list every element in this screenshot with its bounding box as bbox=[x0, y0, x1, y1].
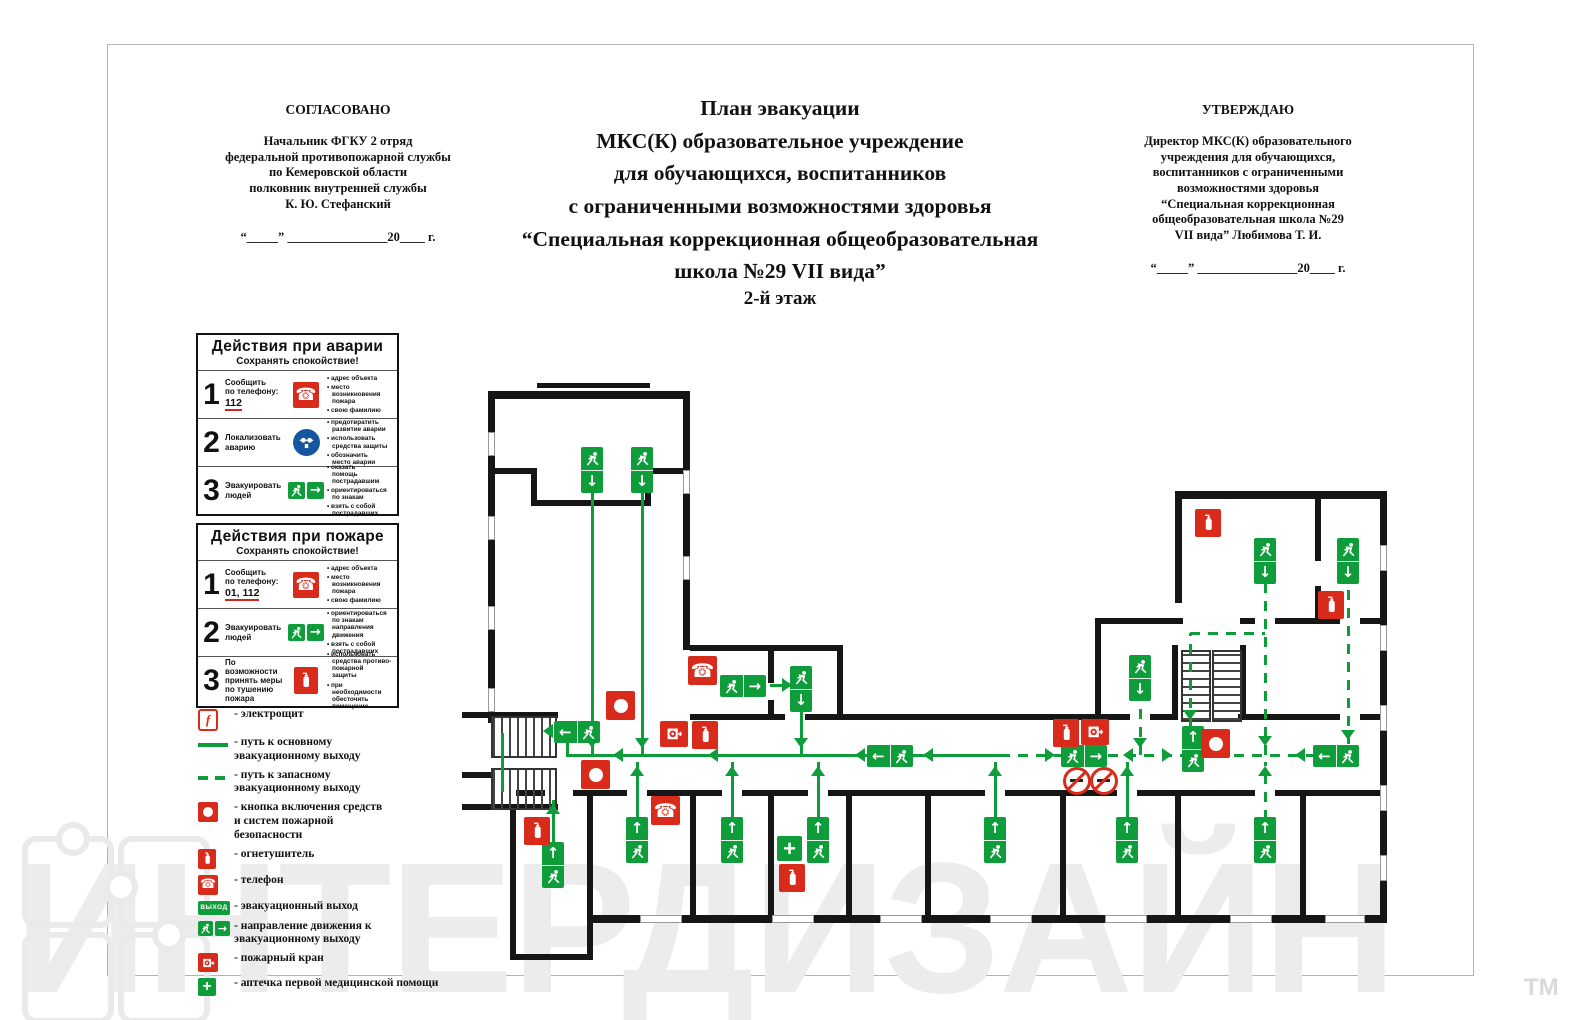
legend-item: ВЫХОД- эвакуационный выход bbox=[198, 900, 478, 915]
evacuation-route-solid bbox=[501, 733, 504, 792]
exit-sign-right-icon: → bbox=[720, 675, 766, 697]
wall bbox=[1240, 618, 1255, 624]
legend-item: +- аптечка первой медицинской помощи bbox=[198, 977, 478, 996]
step-number: 2 bbox=[198, 616, 225, 650]
window-opening bbox=[1380, 705, 1387, 731]
legend-label: - электрощит bbox=[234, 708, 304, 722]
bullet-item: • использовать средства противо- пожарно… bbox=[327, 651, 396, 679]
wall bbox=[690, 796, 696, 915]
extinguisher-icon bbox=[692, 721, 718, 749]
bullet-item: • свою фамилию bbox=[327, 407, 396, 414]
sign-cell: ↓ bbox=[1254, 562, 1276, 585]
first-aid-icon: + bbox=[777, 836, 802, 861]
route-arrow bbox=[1045, 748, 1055, 762]
sign-cell: ↑ bbox=[807, 817, 829, 841]
step-bullets: • использовать средства противо- пожарно… bbox=[325, 647, 397, 713]
wall bbox=[488, 391, 690, 399]
wall bbox=[1095, 618, 1183, 624]
evacuation-route-solid bbox=[567, 754, 1000, 757]
step-label: Эвакуировать людей bbox=[225, 481, 287, 499]
wall bbox=[1137, 790, 1255, 796]
step-bullets: • адрес объекта• место возникновения пож… bbox=[325, 371, 397, 418]
wall bbox=[462, 772, 492, 778]
instruction-row: 2Локализовать аварию• предотвратить разв… bbox=[198, 418, 397, 466]
main-route-line-icon bbox=[198, 743, 228, 747]
wall bbox=[690, 714, 785, 720]
exit-sign-down-icon: ↓ bbox=[1337, 538, 1359, 584]
no-smoking-icon bbox=[1063, 767, 1091, 795]
exit-sign-left-icon: ← bbox=[554, 721, 600, 743]
extinguisher-icon bbox=[524, 817, 550, 845]
instruction-row: 1Сообщить по телефону:01, 112☎• адрес об… bbox=[198, 560, 397, 608]
sign-cell bbox=[807, 841, 829, 864]
route-arrow bbox=[855, 748, 865, 762]
exit-sign-down-icon: ↓ bbox=[631, 447, 653, 493]
box-title: Действия при пожаре bbox=[198, 525, 397, 546]
extinguisher-icon bbox=[1318, 591, 1344, 619]
legend-icon-cell: + bbox=[198, 977, 234, 996]
legend-item: →- направление движения к эвакуационному… bbox=[198, 920, 478, 948]
wall bbox=[1300, 714, 1340, 720]
accident-actions-box: Действия при аварииСохранять спокойствие… bbox=[196, 333, 399, 516]
protective-mask-icon bbox=[293, 429, 320, 456]
box-title: Действия при аварии bbox=[198, 335, 397, 356]
legend-label: - эвакуационный выход bbox=[234, 900, 358, 914]
legend-label: - кнопка включения средств и систем пожа… bbox=[234, 801, 382, 842]
wall bbox=[768, 796, 774, 915]
box-subtitle: Сохранять спокойствие! bbox=[198, 356, 397, 370]
sign-cell bbox=[1254, 538, 1276, 562]
step-icon-cell bbox=[287, 667, 325, 694]
sign-cell bbox=[542, 866, 564, 889]
wall bbox=[1175, 491, 1387, 499]
plan-title: План эвакуации МКС(К) образовательное уч… bbox=[455, 92, 1105, 288]
phone-icon: ☎ bbox=[688, 656, 717, 685]
window-opening bbox=[772, 915, 814, 923]
route-arrow bbox=[543, 724, 553, 738]
sign-cell: ↓ bbox=[631, 471, 653, 494]
bullet-item: • место возникновения пожара bbox=[327, 384, 396, 405]
step-icon-cell: ☎ bbox=[287, 572, 325, 598]
bullet-item: • ориентироваться по знакам bbox=[327, 487, 396, 501]
evacuation-route-solid bbox=[641, 492, 644, 755]
window-opening bbox=[488, 516, 495, 540]
exit-sign-up-icon: ↑ bbox=[721, 817, 743, 863]
box-subtitle: Сохранять спокойствие! bbox=[198, 546, 397, 560]
evacuation-route-dashed bbox=[1190, 632, 1265, 635]
sign-cell: ← bbox=[1313, 745, 1337, 767]
agree-block: СОГЛАСОВАНО Начальник ФГКУ 2 отряд федер… bbox=[196, 86, 480, 261]
sign-cell: ↑ bbox=[721, 817, 743, 841]
step-number: 2 bbox=[198, 426, 225, 460]
sign-cell bbox=[720, 675, 744, 697]
bullet-item: • использовать средства защиты bbox=[327, 435, 396, 449]
exit-sign-down-icon: ↓ bbox=[581, 447, 603, 493]
phone-icon: ☎ bbox=[198, 875, 218, 895]
wall bbox=[1060, 796, 1066, 915]
reserve-route-line-icon bbox=[198, 776, 228, 780]
agree-dateline: “_____” ________________20____ г. bbox=[196, 230, 480, 246]
legend-icon-cell bbox=[198, 952, 234, 972]
step-label: Локализовать аварию bbox=[225, 433, 287, 451]
sign-cell bbox=[891, 745, 914, 767]
stairs bbox=[1212, 650, 1242, 722]
exit-man-icon bbox=[288, 482, 305, 499]
window-opening bbox=[880, 915, 922, 923]
phone-number: 01, 112 bbox=[225, 587, 259, 601]
alarm-button-icon bbox=[1201, 729, 1230, 758]
wall bbox=[1175, 491, 1182, 603]
wall bbox=[690, 645, 843, 651]
exit-sign-up-icon: ↑ bbox=[542, 842, 564, 888]
step-icon-cell: ☎ bbox=[287, 382, 325, 408]
bullet-item: • при необходимости обесточить помещение bbox=[327, 682, 396, 710]
sign-cell: ↑ bbox=[1254, 817, 1276, 841]
phone-icon: ☎ bbox=[293, 382, 319, 408]
wall bbox=[683, 391, 690, 650]
route-arrow bbox=[1120, 766, 1134, 776]
step-number: 1 bbox=[198, 378, 225, 412]
legend-label: - направление движения к эвакуационному … bbox=[234, 920, 371, 948]
wall bbox=[846, 796, 852, 915]
route-arrow bbox=[811, 766, 825, 776]
exit-man-icon bbox=[288, 624, 305, 641]
legend-label: - пожарный кран bbox=[234, 952, 324, 966]
window-opening bbox=[1380, 785, 1387, 811]
route-arrow bbox=[708, 748, 718, 762]
sign-cell: ↑ bbox=[984, 817, 1006, 841]
window-opening bbox=[640, 915, 682, 923]
instruction-row: 1Сообщить по телефону:112☎• адрес объект… bbox=[198, 370, 397, 418]
legend-label: - телефон bbox=[234, 874, 284, 888]
window-opening bbox=[990, 915, 1032, 923]
sign-cell bbox=[1337, 538, 1359, 562]
alarm-button-icon bbox=[581, 760, 610, 789]
evacuation-route-solid bbox=[800, 710, 803, 755]
sign-cell bbox=[1061, 745, 1085, 767]
wall bbox=[510, 954, 593, 960]
legend-item: - огнетушитель bbox=[198, 848, 478, 869]
arrow-right-icon: → bbox=[307, 482, 324, 499]
electric-panel-icon: f bbox=[198, 709, 218, 731]
fire-actions-box: Действия при пожареСохранять спокойствие… bbox=[196, 523, 399, 708]
exit-sign-up-icon: ↑ bbox=[807, 817, 829, 863]
step-number: 1 bbox=[198, 568, 225, 602]
route-arrow bbox=[546, 804, 560, 814]
step-label: Эвакуировать людей bbox=[225, 623, 287, 641]
window-opening bbox=[488, 688, 495, 712]
instruction-row: 3Эвакуировать людей→• оказать помощь пос… bbox=[198, 466, 397, 514]
legend-icon-cell: ВЫХОД bbox=[198, 900, 234, 915]
exit-sign-down-icon: ↓ bbox=[1254, 538, 1276, 584]
phone-number: 112 bbox=[225, 397, 242, 411]
approve-block: УТВЕРЖДАЮ Директор МКС(К) образовательно… bbox=[1100, 86, 1396, 292]
legend-icon-cell: f bbox=[198, 708, 234, 731]
bullet-item: • адрес объекта bbox=[327, 565, 396, 572]
wall bbox=[1175, 796, 1181, 915]
step-label: По возможности принять меры по тушению п… bbox=[225, 658, 287, 704]
exit-sign-up-icon: ↑ bbox=[626, 817, 648, 863]
wall bbox=[1315, 491, 1321, 561]
legend-item: - пожарный кран bbox=[198, 952, 478, 972]
route-arrow bbox=[1295, 748, 1305, 762]
exit-sign-down-icon: ↓ bbox=[1129, 655, 1151, 701]
step-label: Сообщить по телефону:01, 112 bbox=[225, 568, 287, 601]
bullet-item: • оказать помощь пострадавшим bbox=[327, 464, 396, 485]
sign-cell bbox=[984, 841, 1006, 864]
bullet-item: • адрес объекта bbox=[327, 375, 396, 382]
sign-cell: ↑ bbox=[1116, 817, 1138, 841]
exit-sign-left-icon: ← bbox=[867, 745, 913, 767]
sign-cell bbox=[631, 447, 653, 471]
sign-cell: ↓ bbox=[1337, 562, 1359, 585]
wall bbox=[1095, 618, 1101, 720]
sign-cell: → bbox=[1085, 745, 1108, 767]
legend-item: f- электрощит bbox=[198, 708, 478, 731]
route-arrow bbox=[794, 738, 808, 748]
legend-item: - путь к основному эвакуационному выходу bbox=[198, 736, 478, 764]
bullet-item: • свою фамилию bbox=[327, 597, 396, 604]
sign-cell: ← bbox=[554, 721, 578, 743]
exit-direction-icons: → bbox=[288, 482, 324, 499]
extinguisher-icon bbox=[779, 864, 805, 892]
extinguisher-icon bbox=[1195, 509, 1221, 537]
window-opening bbox=[1380, 855, 1387, 881]
route-arrow bbox=[1341, 730, 1355, 740]
route-arrow bbox=[1183, 710, 1197, 720]
wall bbox=[1275, 790, 1385, 796]
sign-cell: ↓ bbox=[1129, 679, 1151, 702]
arrow-right-icon: → bbox=[307, 624, 324, 641]
evacuation-plan-page: ИНТЕРДИЗАЙН ТМ СОГЛАСОВАНО Начальник ФГК… bbox=[0, 0, 1580, 1020]
wall bbox=[510, 804, 516, 960]
sign-cell: ↑ bbox=[542, 842, 564, 866]
fire-hose-icon bbox=[198, 953, 218, 972]
legend-icon-cell bbox=[198, 848, 234, 869]
legend-label: - огнетушитель bbox=[234, 848, 314, 862]
approve-title: УТВЕРЖДАЮ bbox=[1100, 102, 1396, 119]
sign-cell: ↑ bbox=[626, 817, 648, 841]
phone-icon: ☎ bbox=[293, 572, 319, 598]
sign-cell: ↓ bbox=[581, 471, 603, 494]
step-bullets: • адрес объекта• место возникновения пож… bbox=[325, 561, 397, 608]
route-arrow bbox=[1123, 748, 1133, 762]
exit-sign-left-icon: ← bbox=[1313, 745, 1359, 767]
step-icon-cell: → bbox=[287, 624, 325, 641]
sign-cell: ↓ bbox=[790, 690, 812, 713]
floor-label: 2-й этаж bbox=[455, 288, 1105, 310]
window-opening bbox=[488, 432, 495, 456]
agree-title: СОГЛАСОВАНО bbox=[196, 102, 480, 119]
wall bbox=[925, 796, 931, 915]
extinguisher-icon bbox=[198, 849, 216, 869]
evacuation-route-dashed bbox=[1347, 584, 1350, 744]
legend-icon-cell bbox=[198, 769, 234, 780]
wall bbox=[573, 790, 627, 796]
bullet-item: • ориентироваться по знакам направления … bbox=[327, 610, 396, 638]
route-arrow bbox=[1133, 738, 1147, 748]
sign-cell bbox=[1254, 841, 1276, 864]
bullet-item: • взять с собой пострадавших bbox=[327, 503, 396, 517]
legend-item: - кнопка включения средств и систем пожа… bbox=[198, 801, 478, 842]
step-icon-cell bbox=[287, 429, 325, 456]
wall bbox=[742, 790, 808, 796]
wall bbox=[1300, 796, 1306, 915]
legend-label: - путь к основному эвакуационному выходу bbox=[234, 736, 360, 764]
exit-sign-up-icon: ↑ bbox=[984, 817, 1006, 863]
evacuation-route-solid bbox=[591, 492, 594, 755]
wall bbox=[768, 645, 774, 683]
route-arrow bbox=[630, 766, 644, 776]
wall bbox=[587, 893, 593, 960]
fire-hose-icon bbox=[1081, 719, 1109, 745]
window-opening bbox=[683, 556, 690, 580]
extinguisher-icon bbox=[294, 667, 318, 694]
step-bullets: • оказать помощь пострадавшим• ориентиро… bbox=[325, 460, 397, 521]
exit-sign-down-icon: ↓ bbox=[790, 666, 812, 712]
step-icon-cell: → bbox=[287, 482, 325, 499]
legend-icon-cell bbox=[198, 801, 234, 822]
route-arrow bbox=[1162, 748, 1172, 762]
exit-badge-icon: ВЫХОД bbox=[198, 901, 230, 915]
legend-icon-cell bbox=[198, 736, 234, 747]
alarm-button-icon bbox=[606, 691, 635, 720]
legend-item: - путь к запасному эвакуационному выходу bbox=[198, 769, 478, 797]
sign-cell: ← bbox=[867, 745, 891, 767]
direction-sign-icon: → bbox=[198, 921, 230, 936]
evacuation-route-dashed bbox=[1264, 584, 1267, 755]
first-aid-icon: + bbox=[198, 978, 216, 996]
route-arrow bbox=[923, 748, 933, 762]
bullet-item: • место возникновения пожара bbox=[327, 574, 396, 595]
approve-body: Директор МКС(К) образовательного учрежде… bbox=[1100, 134, 1396, 243]
wall bbox=[837, 645, 843, 720]
window-opening bbox=[1380, 545, 1387, 571]
instruction-row: 3По возможности принять меры по тушению … bbox=[198, 656, 397, 704]
window-opening bbox=[1380, 625, 1387, 651]
wall bbox=[488, 468, 536, 474]
sign-cell bbox=[721, 841, 743, 864]
approve-dateline: “_____” ________________20____ г. bbox=[1100, 261, 1396, 277]
bullet-item: • предотвратить развитие аварии bbox=[327, 419, 396, 433]
exit-sign-right-icon: → bbox=[1061, 745, 1107, 767]
wall bbox=[587, 790, 593, 898]
exit-sign-up-icon: ↑ bbox=[1116, 817, 1138, 863]
window-opening bbox=[1105, 915, 1147, 923]
route-arrow bbox=[1258, 766, 1272, 776]
sign-cell bbox=[1129, 655, 1151, 679]
phone-icon: ☎ bbox=[651, 796, 680, 825]
exit-direction-icons: → bbox=[288, 624, 324, 641]
wall bbox=[1360, 618, 1387, 624]
sign-cell bbox=[790, 666, 812, 690]
sign-cell bbox=[581, 447, 603, 471]
route-arrow bbox=[1258, 736, 1272, 746]
route-arrow bbox=[725, 766, 739, 776]
legend-item: ☎- телефон bbox=[198, 874, 478, 895]
route-arrow bbox=[635, 738, 649, 748]
sign-cell bbox=[578, 721, 601, 743]
alarm-button-icon bbox=[198, 802, 218, 822]
extinguisher-icon bbox=[1053, 719, 1079, 747]
window-opening bbox=[1230, 915, 1272, 923]
wall bbox=[537, 383, 650, 388]
legend-icon-cell: ☎ bbox=[198, 874, 234, 895]
legend-label: - аптечка первой медицинской помощи bbox=[234, 977, 438, 991]
sign-cell bbox=[1116, 841, 1138, 864]
window-opening bbox=[1325, 915, 1365, 923]
sign-cell: → bbox=[744, 675, 767, 697]
legend: f- электрощит- путь к основному эвакуаци… bbox=[198, 708, 478, 1001]
wall bbox=[1238, 714, 1300, 720]
agree-body: Начальник ФГКУ 2 отряд федеральной проти… bbox=[196, 134, 480, 212]
legend-icon-cell: → bbox=[198, 920, 234, 936]
step-label: Сообщить по телефону:112 bbox=[225, 378, 287, 411]
sign-cell bbox=[626, 841, 648, 864]
step-number: 3 bbox=[198, 664, 225, 698]
window-opening bbox=[488, 606, 495, 630]
legend-label: - путь к запасному эвакуационному выходу bbox=[234, 769, 360, 797]
route-arrow bbox=[988, 766, 1002, 776]
exit-sign-up-icon: ↑ bbox=[1254, 817, 1276, 863]
step-number: 3 bbox=[198, 474, 225, 508]
wall bbox=[805, 714, 1095, 720]
wall bbox=[1172, 645, 1178, 720]
no-smoking-icon bbox=[1090, 767, 1118, 795]
sign-cell bbox=[1337, 745, 1360, 767]
window-opening bbox=[683, 470, 690, 494]
route-arrow bbox=[613, 748, 623, 762]
fire-hose-icon bbox=[660, 721, 688, 747]
